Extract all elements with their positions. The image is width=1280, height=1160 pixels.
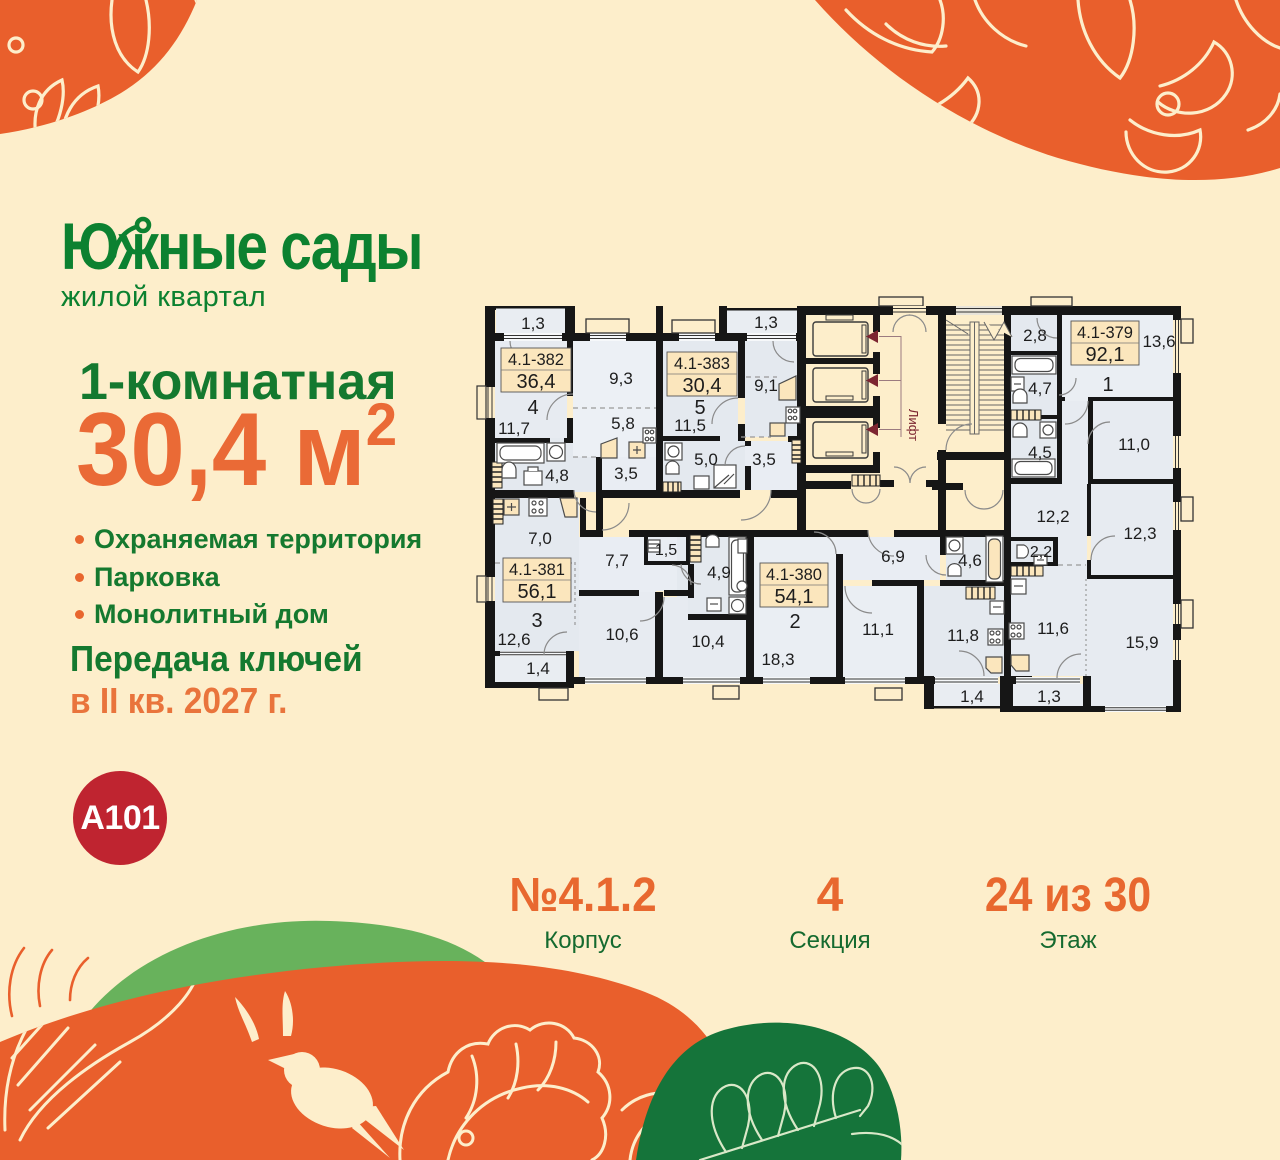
- svg-text:2,2: 2,2: [1030, 544, 1052, 561]
- svg-text:5,8: 5,8: [611, 414, 635, 433]
- svg-text:11,6: 11,6: [1037, 619, 1069, 638]
- svg-text:4: 4: [527, 397, 538, 419]
- svg-text:1,4: 1,4: [526, 659, 550, 678]
- svg-text:10,4: 10,4: [691, 632, 724, 651]
- svg-text:12,3: 12,3: [1123, 524, 1156, 543]
- svg-text:9,3: 9,3: [609, 369, 633, 388]
- svg-text:1,5: 1,5: [655, 542, 677, 559]
- svg-text:11,8: 11,8: [947, 626, 979, 645]
- svg-text:4.1-379: 4.1-379: [1077, 324, 1133, 342]
- svg-text:4,6: 4,6: [958, 551, 982, 570]
- svg-text:4,5: 4,5: [1028, 443, 1052, 462]
- svg-text:1,3: 1,3: [521, 314, 545, 333]
- svg-text:15,9: 15,9: [1125, 633, 1158, 652]
- svg-text:13,6: 13,6: [1142, 332, 1175, 351]
- svg-text:10,6: 10,6: [605, 625, 638, 644]
- svg-text:1,3: 1,3: [754, 313, 778, 332]
- svg-text:4.1-382: 4.1-382: [508, 351, 564, 369]
- svg-text:3,5: 3,5: [752, 450, 776, 469]
- svg-text:4,7: 4,7: [1028, 379, 1052, 398]
- svg-text:6,9: 6,9: [881, 547, 905, 566]
- svg-text:36,4: 36,4: [517, 371, 556, 393]
- svg-text:12,2: 12,2: [1036, 507, 1069, 526]
- svg-text:11,7: 11,7: [498, 419, 530, 438]
- svg-text:11,0: 11,0: [1118, 435, 1150, 454]
- svg-text:4.1-381: 4.1-381: [509, 561, 565, 579]
- svg-text:Лифт: Лифт: [906, 409, 921, 441]
- svg-text:2,8: 2,8: [1023, 326, 1047, 345]
- svg-text:7,0: 7,0: [528, 529, 552, 548]
- svg-text:92,1: 92,1: [1086, 344, 1125, 366]
- svg-text:4,8: 4,8: [545, 466, 569, 485]
- svg-text:7,7: 7,7: [605, 551, 629, 570]
- svg-text:1,3: 1,3: [1037, 687, 1061, 706]
- svg-text:11,5: 11,5: [674, 416, 706, 435]
- svg-text:1: 1: [1102, 374, 1113, 396]
- svg-text:9,1: 9,1: [754, 376, 778, 395]
- svg-text:18,3: 18,3: [761, 650, 794, 669]
- svg-text:2: 2: [789, 611, 800, 633]
- svg-text:4.1-383: 4.1-383: [674, 355, 730, 373]
- svg-text:11,1: 11,1: [862, 620, 894, 639]
- svg-text:5,0: 5,0: [694, 450, 718, 469]
- svg-text:1,4: 1,4: [960, 687, 984, 706]
- svg-text:12,6: 12,6: [497, 630, 530, 649]
- svg-text:3,5: 3,5: [614, 464, 638, 483]
- svg-text:54,1: 54,1: [775, 586, 814, 608]
- svg-text:4.1-380: 4.1-380: [766, 566, 822, 584]
- svg-text:3: 3: [531, 610, 542, 632]
- svg-text:30,4: 30,4: [683, 375, 722, 397]
- svg-text:4,9: 4,9: [707, 563, 731, 582]
- svg-text:56,1: 56,1: [518, 581, 557, 603]
